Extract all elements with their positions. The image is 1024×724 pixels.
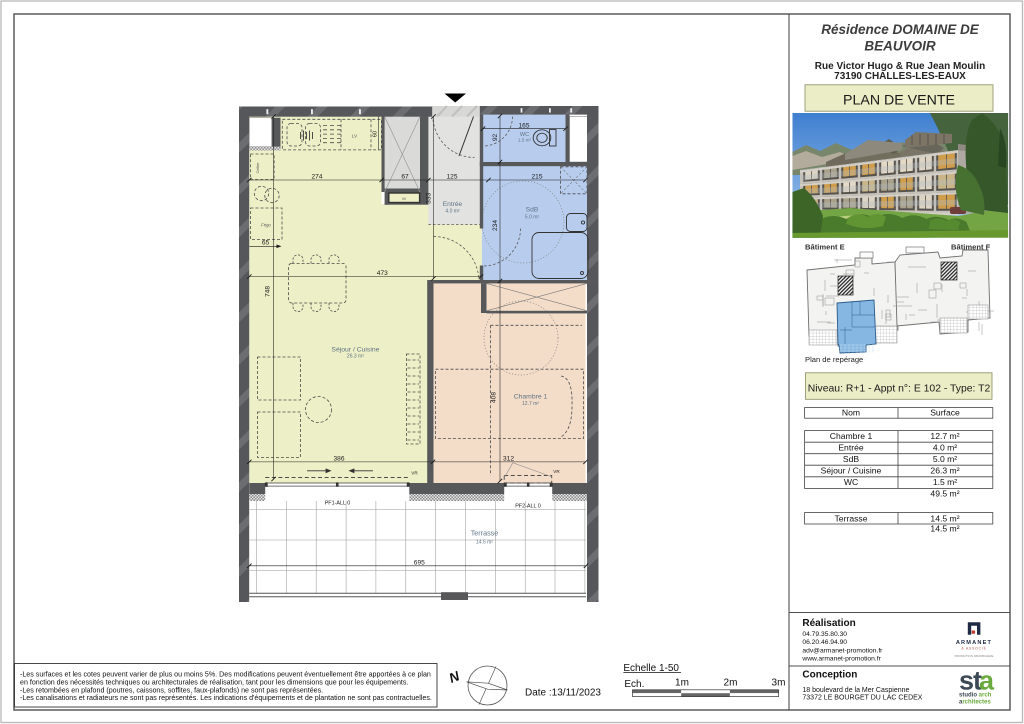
svg-text:18 boulevard de la Mer Caspien: 18 boulevard de la Mer Caspienne — [802, 687, 909, 694]
svg-text:49.5 m²: 49.5 m² — [930, 489, 959, 499]
svg-text:studio arch: studio arch — [959, 693, 992, 699]
svg-text:408: 408 — [490, 392, 497, 403]
svg-text:73372 LE BOURGET DU LAC CEDEX: 73372 LE BOURGET DU LAC CEDEX — [802, 694, 922, 701]
svg-text:SdB: SdB — [843, 454, 860, 464]
svg-text:a: a — [979, 666, 995, 696]
svg-text:5.0 m²: 5.0 m² — [933, 454, 957, 464]
svg-text:1m: 1m — [675, 677, 689, 688]
svg-text:ARMANET: ARMANET — [956, 640, 992, 646]
svg-text:215: 215 — [531, 174, 542, 181]
svg-text:PF1-ALL 0: PF1-ALL 0 — [325, 501, 351, 507]
svg-text:M: M — [402, 196, 405, 201]
svg-text:Chambre 1: Chambre 1 — [514, 394, 548, 401]
svg-text:Cellier: Cellier — [256, 162, 260, 173]
svg-text:14.5 m²: 14.5 m² — [476, 540, 493, 546]
svg-text:Bâtiment E: Bâtiment E — [805, 243, 845, 252]
svg-text:Nom: Nom — [842, 407, 860, 417]
svg-text:Conception: Conception — [802, 669, 857, 680]
svg-text:14.5 m²: 14.5 m² — [930, 513, 959, 523]
svg-text:06.20.46.94.90: 06.20.46.94.90 — [802, 639, 847, 646]
svg-text:748: 748 — [265, 286, 272, 297]
svg-text:PLAN DE VENTE: PLAN DE VENTE — [843, 93, 955, 109]
svg-text:BEAUVOIR: BEAUVOIR — [864, 39, 936, 54]
svg-text:2m: 2m — [724, 677, 738, 688]
svg-text:Entrée: Entrée — [443, 201, 463, 208]
svg-text:234: 234 — [492, 220, 499, 231]
svg-text:92: 92 — [492, 134, 499, 142]
svg-text:4.0 m²: 4.0 m² — [445, 209, 460, 215]
svg-text:LV: LV — [352, 133, 357, 138]
svg-text:4.0 m²: 4.0 m² — [933, 442, 957, 452]
svg-text:-Les surfaces et les cotes peu: -Les surfaces et les cotes peuvent varie… — [20, 671, 431, 679]
svg-text:Séjour / Cuisine: Séjour / Cuisine — [331, 346, 379, 353]
svg-text:26.3 m²: 26.3 m² — [347, 354, 364, 360]
svg-text:26.3 m²: 26.3 m² — [930, 465, 959, 475]
svg-text:Plan de repérage: Plan de repérage — [805, 355, 863, 364]
svg-text:386: 386 — [333, 456, 344, 463]
svg-text:3m: 3m — [772, 677, 786, 688]
svg-text:Niveau: R+1 - Appt n°: E 102: Niveau: R+1 - Appt n°: E 102 - Type: T2 — [808, 384, 991, 395]
svg-text:en fonction des nécessités tec: en fonction des nécessités techniques ou… — [20, 678, 408, 686]
svg-text:Réalisation: Réalisation — [802, 618, 855, 629]
svg-text:5.0 m²: 5.0 m² — [525, 215, 540, 221]
svg-text:Echelle 1-50: Echelle 1-50 — [623, 663, 679, 674]
svg-text:04.79.35.80.30: 04.79.35.80.30 — [802, 631, 847, 638]
svg-text:695: 695 — [414, 559, 425, 566]
svg-text:67: 67 — [401, 174, 409, 181]
svg-text:Entrée: Entrée — [838, 442, 864, 452]
svg-text:Ech.: Ech. — [624, 679, 644, 690]
svg-text:PROMOTION IMMOBILIÈRE: PROMOTION IMMOBILIÈRE — [954, 653, 993, 658]
svg-text:12.7 m²: 12.7 m² — [522, 401, 539, 407]
svg-text:Surface: Surface — [930, 407, 960, 417]
svg-text:Terrasse: Terrasse — [471, 529, 499, 538]
svg-text:architectes: architectes — [959, 700, 991, 706]
svg-text:Résidence DOMAINE DE: Résidence DOMAINE DE — [821, 22, 980, 37]
svg-text:Séjour / Cuisine: Séjour / Cuisine — [821, 465, 882, 475]
svg-text:VR: VR — [553, 469, 560, 474]
svg-text:WC: WC — [844, 477, 858, 487]
svg-text:274: 274 — [311, 174, 322, 181]
svg-text:14.5 m²: 14.5 m² — [930, 524, 959, 534]
svg-text:73190 CHALLES-LES-EAUX: 73190 CHALLES-LES-EAUX — [834, 71, 966, 82]
svg-text:PF2-ALL 0: PF2-ALL 0 — [515, 504, 541, 510]
svg-text:SdB: SdB — [526, 207, 539, 214]
svg-text:1.5 m²: 1.5 m² — [933, 477, 957, 487]
svg-text:312: 312 — [503, 456, 514, 463]
svg-text:Terrasse: Terrasse — [835, 513, 868, 523]
svg-text:1.5 m²: 1.5 m² — [518, 138, 531, 143]
svg-text:12.7 m²: 12.7 m² — [930, 431, 959, 441]
svg-text:Frigo: Frigo — [261, 223, 271, 228]
svg-text:Date :13/11/2023: Date :13/11/2023 — [525, 688, 601, 699]
svg-text:& ASSOCIÉ: & ASSOCIÉ — [961, 645, 986, 650]
svg-text:65: 65 — [262, 239, 270, 246]
svg-text:473: 473 — [377, 270, 388, 277]
svg-text:165: 165 — [518, 122, 529, 129]
svg-text:-Les retombées en plafond (pou: -Les retombées en plafond (poutres, cais… — [20, 686, 323, 694]
svg-text:VR: VR — [411, 471, 418, 476]
svg-text:-Les canalisations et radiateu: -Les canalisations et radiateurs ne sont… — [20, 694, 432, 702]
svg-text:125: 125 — [446, 174, 457, 181]
svg-text:333: 333 — [426, 192, 433, 203]
svg-text:60: 60 — [373, 131, 379, 137]
svg-text:Chambre 1: Chambre 1 — [830, 431, 873, 441]
svg-text:adv@armanet-promotion.fr: adv@armanet-promotion.fr — [802, 647, 883, 654]
svg-text:www.armanet-promotion.fr: www.armanet-promotion.fr — [801, 655, 881, 662]
